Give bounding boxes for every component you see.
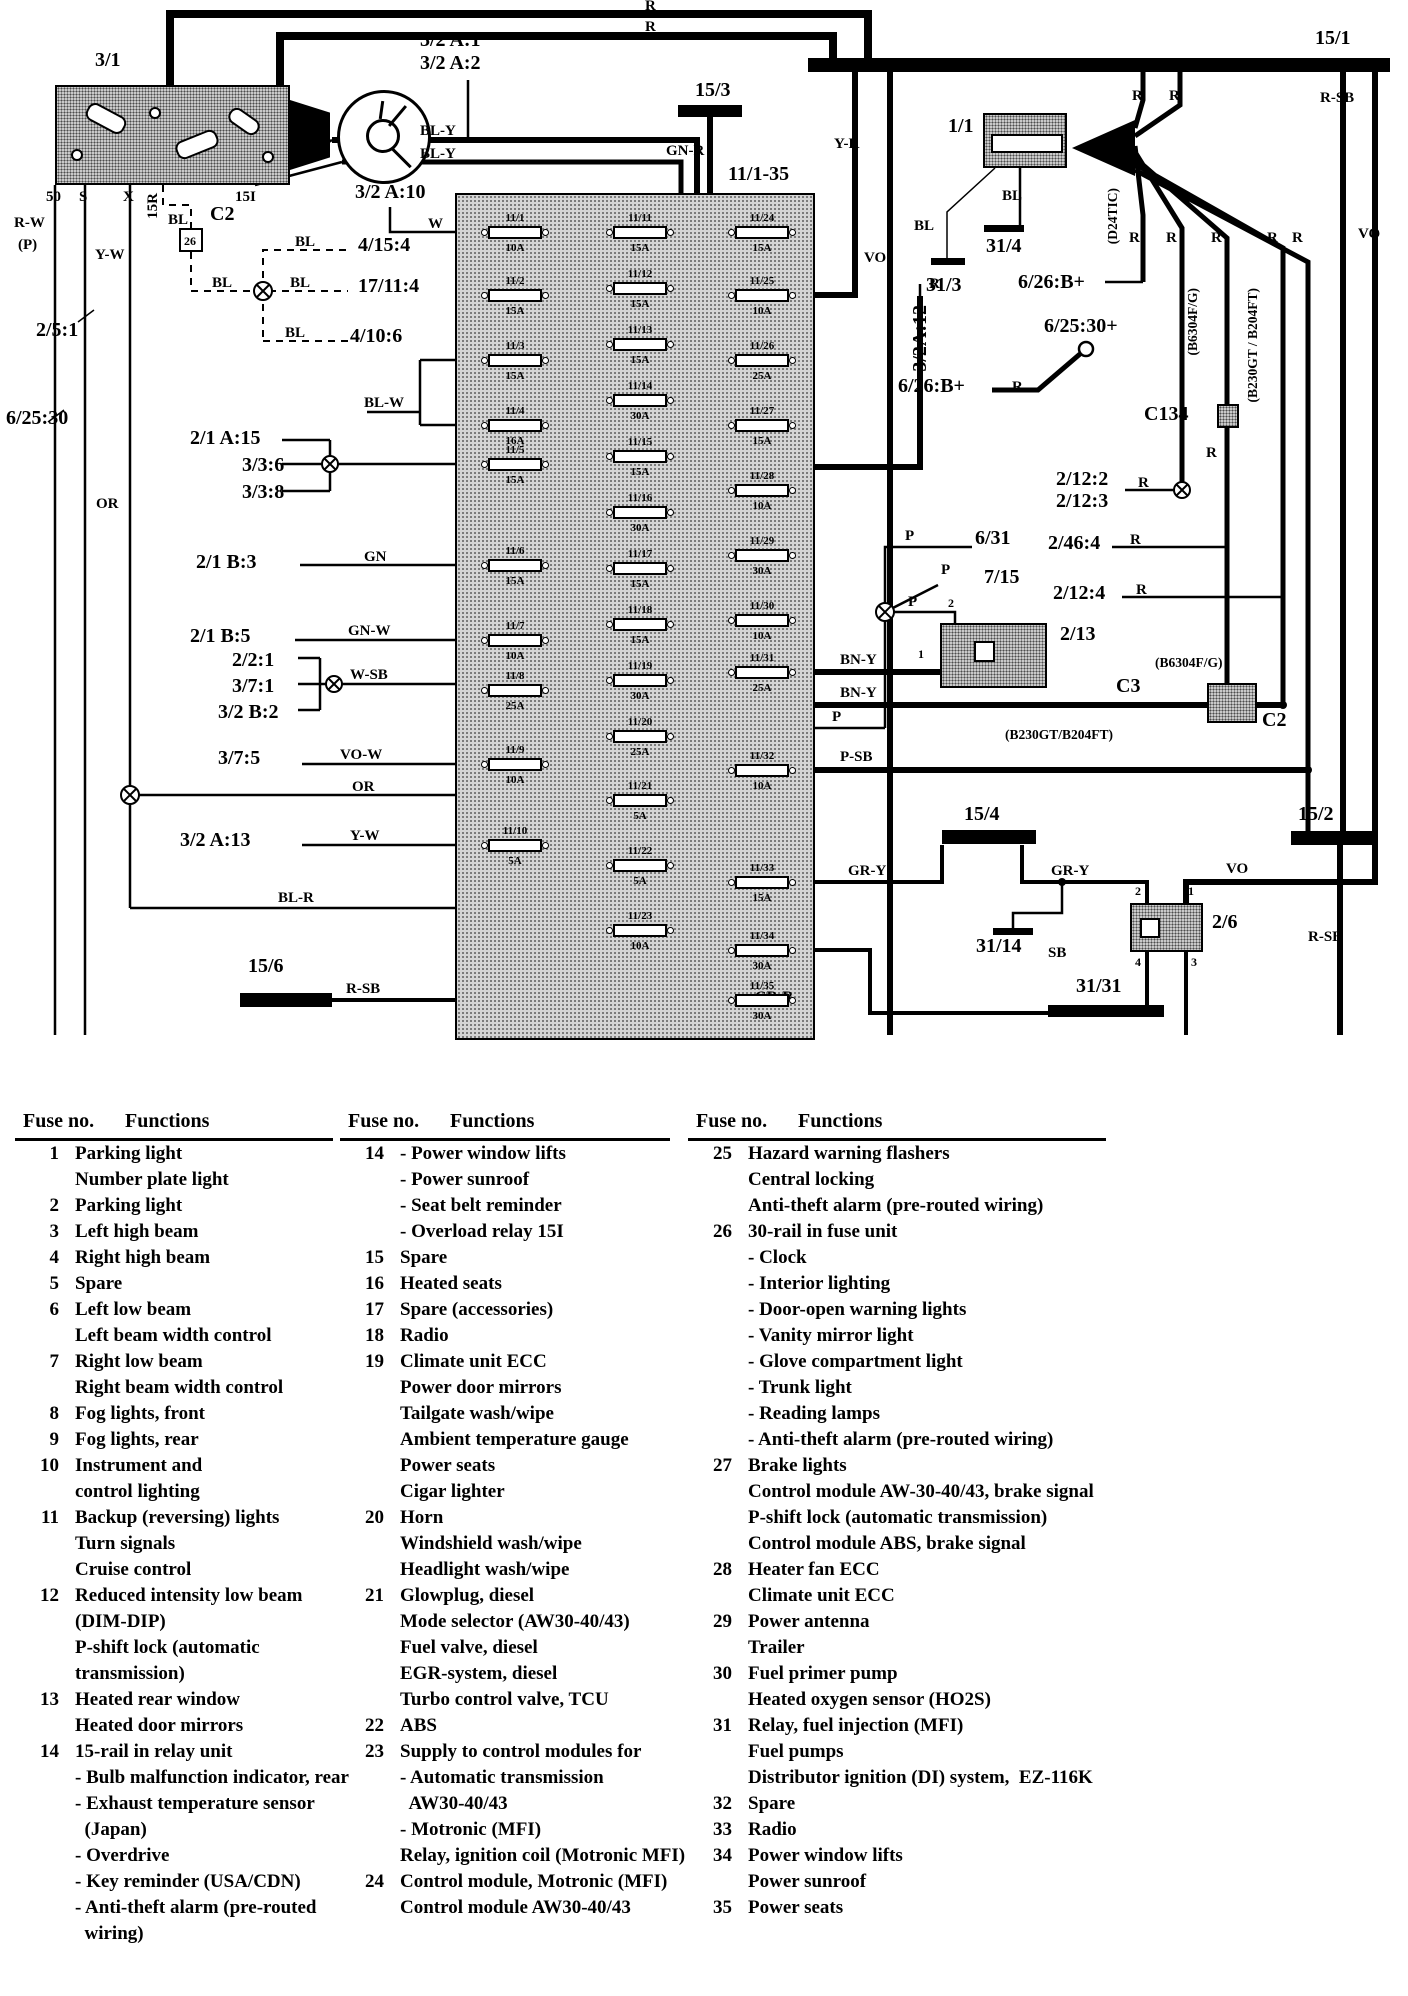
fuse-body <box>735 226 789 239</box>
fuse-id: 11/4 <box>488 405 542 417</box>
fuse-amp-rating: 10A <box>613 940 667 952</box>
fuse-body <box>488 458 542 471</box>
diagram-label: 15I <box>235 190 256 205</box>
diagram-label: VO <box>1226 862 1248 877</box>
diagram-label: 3/7:1 <box>232 676 274 696</box>
schematic-area: 26 3/1RR15/13/2 A:13/2 A:250SX15R15IBL-Y… <box>0 0 1408 1060</box>
diagram-label: 3/2A:12 <box>910 305 930 372</box>
fuse-11-21: 11/215A <box>613 794 667 807</box>
diagram-label: R <box>645 20 656 35</box>
fuse-id: 11/5 <box>488 444 542 456</box>
diagram-label: R-SB <box>346 982 380 997</box>
legend-function-text: Spare <box>400 1245 447 1271</box>
legend-entry-17: 17Spare (accessories) <box>340 1297 670 1323</box>
legend-function-text: ABS <box>400 1713 437 1739</box>
legend-fuse-number: 14 <box>15 1739 59 1947</box>
diagram-label: BL-W <box>364 396 404 411</box>
fuse-body <box>735 944 789 957</box>
legend-entry-6: 6Left low beam Left beam width control <box>15 1297 333 1349</box>
fuse-amp-rating: 10A <box>735 780 789 792</box>
fuse-body <box>613 618 667 631</box>
fuse-amp-rating: 30A <box>735 960 789 972</box>
diagram-label: BL <box>285 326 305 341</box>
fuse-body <box>735 484 789 497</box>
fuse-11-17: 11/1715A <box>613 562 667 575</box>
legend-fuse-number: 35 <box>688 1895 732 1921</box>
fuse-11-33: 11/3315A <box>735 876 789 889</box>
diagram-label: (B6304F/G) <box>1186 288 1200 356</box>
legend-entry-22: 22ABS <box>340 1713 670 1739</box>
diagram-label: 2/2:1 <box>232 650 274 670</box>
diagram-label: 1/1 <box>948 116 974 136</box>
fuse-11-8: 11/825A <box>488 684 542 697</box>
fuse-body <box>735 666 789 679</box>
legend-entry-32: 32Spare <box>688 1791 1106 1817</box>
legend-fuse-number: 17 <box>340 1297 384 1323</box>
legend-fuse-number: 5 <box>15 1271 59 1297</box>
diagram-label: 2 <box>1135 885 1141 897</box>
diagram-label: 4/10:6 <box>350 326 402 346</box>
fuse-amp-rating: 15A <box>488 575 542 587</box>
fuse-id: 11/32 <box>735 750 789 762</box>
diagram-label: 2/1 B:3 <box>196 552 257 572</box>
fuse-11-19: 11/1930A <box>613 674 667 687</box>
switch-connector <box>290 100 330 170</box>
diagram-label: GN-R <box>666 144 704 159</box>
diagram-label: 6/25:30 <box>6 408 68 428</box>
diagram-label: GN <box>364 550 387 565</box>
diagram-label: GN-W <box>348 624 391 639</box>
fuse-amp-rating: 15A <box>613 298 667 310</box>
fuse-id: 11/31 <box>735 652 789 664</box>
fuse-id: 11/33 <box>735 862 789 874</box>
legend-fuse-number: 21 <box>340 1583 384 1713</box>
fuse-11-15: 11/1515A <box>613 450 667 463</box>
legend-fuse-number: 11 <box>15 1505 59 1583</box>
diagram-label: (P) <box>18 238 37 253</box>
diagram-label: R <box>1169 89 1180 104</box>
legend-fuse-number: 16 <box>340 1271 384 1297</box>
diagram-label: BN-Y <box>840 686 877 701</box>
fuse-id: 11/16 <box>613 492 667 504</box>
fuse-amp-rating: 5A <box>613 875 667 887</box>
legend-fuse-number: 19 <box>340 1349 384 1505</box>
legend-entry-7: 7Right low beam Right beam width control <box>15 1349 333 1401</box>
fuse-id: 11/20 <box>613 716 667 728</box>
fuse-body <box>488 634 542 647</box>
fuse-body <box>488 839 542 852</box>
fuse-id: 11/7 <box>488 620 542 632</box>
component-1-1 <box>983 113 1067 168</box>
diagram-label: R-SB <box>1308 930 1342 945</box>
legend-function-text: Fog lights, front <box>75 1401 205 1427</box>
fuse-body <box>613 226 667 239</box>
diagram-label: P-SB <box>840 750 873 765</box>
legend-fuse-number: 26 <box>688 1219 732 1453</box>
fuse-id: 11/19 <box>613 660 667 672</box>
diagram-label: 3/2 A:10 <box>355 182 426 202</box>
diagram-label: GR-Y <box>848 864 886 879</box>
connector-c3-c2 <box>1207 683 1257 723</box>
diagram-label: S <box>79 190 87 205</box>
fuse-body <box>488 684 542 697</box>
fuse-body <box>488 354 542 367</box>
fuse-11-29: 11/2930A <box>735 549 789 562</box>
fuse-body <box>613 562 667 575</box>
legend-function-text: Heated rear window Heated door mirrors <box>75 1687 243 1739</box>
legend-function-text: Backup (reversing) lights Turn signals C… <box>75 1505 279 1583</box>
fuse-id: 11/35 <box>735 980 789 992</box>
diagram-label: 15/4 <box>964 804 1000 824</box>
fuse-body <box>613 794 667 807</box>
fuse-11-14: 11/1430A <box>613 394 667 407</box>
legend-function-text: Radio <box>400 1323 449 1349</box>
diagram-label: R <box>1130 533 1141 548</box>
legend-header: Fuse no.Functions <box>340 1108 670 1141</box>
legend-entry-29: 29Power antenna Trailer <box>688 1609 1106 1661</box>
fuse-11-22: 11/225A <box>613 859 667 872</box>
legend-function-text: Hazard warning flashers Central locking … <box>748 1141 1043 1219</box>
diagram-label: R-W <box>14 216 45 231</box>
diagram-label: 3 <box>1191 956 1197 968</box>
fuse-amp-rating: 15A <box>613 466 667 478</box>
diagram-label: 1 <box>918 648 924 660</box>
legend-function-text: Horn Windshield wash/wipe Headlight wash… <box>400 1505 582 1583</box>
fuse-id: 11/29 <box>735 535 789 547</box>
fuse-amp-rating: 10A <box>488 774 542 786</box>
legend-function-text: Climate unit ECC Power door mirrors Tail… <box>400 1349 629 1505</box>
fuse-11-4: 11/416A <box>488 419 542 432</box>
legend-function-text: Spare <box>748 1791 795 1817</box>
legend-fuse-number: 22 <box>340 1713 384 1739</box>
diagram-label: P <box>832 710 841 725</box>
diagram-label: 2/13 <box>1060 624 1096 644</box>
fuse-id: 11/22 <box>613 845 667 857</box>
legend-entry-19: 19Climate unit ECC Power door mirrors Ta… <box>340 1349 670 1505</box>
legend-function-text: Relay, fuel injection (MFI) Fuel pumps D… <box>748 1713 1093 1791</box>
legend-entry-24: 24Control module, Motronic (MFI) Control… <box>340 1869 670 1921</box>
legend-fuse-number: 12 <box>15 1583 59 1687</box>
legend-column-1: Fuse no.Functions1Parking light Number p… <box>15 1108 333 1947</box>
fuse-amp-rating: 15A <box>735 435 789 447</box>
legend-fuse-number: 4 <box>15 1245 59 1271</box>
fuse-id: 11/14 <box>613 380 667 392</box>
c2-plug-number: 26 <box>184 234 196 249</box>
legend-fuse-number: 20 <box>340 1505 384 1583</box>
legend-header-functions: Functions <box>450 1110 534 1133</box>
fuse-body <box>735 289 789 302</box>
wiring-diagram-page: 26 3/1RR15/13/2 A:13/2 A:250SX15R15IBL-Y… <box>0 0 1408 1996</box>
diagram-label: P <box>905 529 914 544</box>
diagram-label: 4 <box>1135 956 1141 968</box>
legend-fuse-number: 29 <box>688 1609 732 1661</box>
diagram-label: BL-Y <box>420 124 456 139</box>
legend-column-3: Fuse no.Functions25Hazard warning flashe… <box>688 1108 1106 1921</box>
legend-function-text: Radio <box>748 1817 797 1843</box>
diagram-label: 3/2 A:2 <box>420 53 481 73</box>
relay-2-6 <box>1130 903 1203 952</box>
fuse-id: 11/2 <box>488 275 542 287</box>
legend-entry-4: 4Right high beam <box>15 1245 333 1271</box>
legend-header-fuse-no: Fuse no. <box>696 1110 767 1133</box>
fuse-amp-rating: 25A <box>735 370 789 382</box>
fuse-amp-rating: 15A <box>735 242 789 254</box>
diagram-label: R <box>1136 583 1147 598</box>
legend-fuse-number: 3 <box>15 1219 59 1245</box>
legend-entry-34: 34Power window lifts Power sunroof <box>688 1843 1106 1895</box>
legend-entry-2: 2Parking light <box>15 1193 333 1219</box>
fuse-11-16: 11/1630A <box>613 506 667 519</box>
fuse-amp-rating: 25A <box>488 700 542 712</box>
fuse-body <box>488 758 542 771</box>
diagram-label: 3/2 A:13 <box>180 830 251 850</box>
legend-entry-11: 11Backup (reversing) lights Turn signals… <box>15 1505 333 1583</box>
diagram-label: 2/46:4 <box>1048 533 1100 553</box>
diagram-label: 31/4 <box>986 236 1022 256</box>
diagram-label: C2 <box>1262 710 1286 730</box>
legend-fuse-number: 2 <box>15 1193 59 1219</box>
fuse-body <box>613 674 667 687</box>
fuse-body <box>613 506 667 519</box>
fuse-11-7: 11/710A <box>488 634 542 647</box>
fuse-11-1: 11/110A <box>488 226 542 239</box>
fuse-11-3: 11/315A <box>488 354 542 367</box>
diagram-label: 2/12:2 <box>1056 469 1108 489</box>
legend-fuse-number: 34 <box>688 1843 732 1895</box>
legend-entry-14: 1415-rail in relay unit - Bulb malfuncti… <box>15 1739 333 1947</box>
legend-entry-14: 14- Power window lifts - Power sunroof -… <box>340 1141 670 1245</box>
diagram-label: 3/3:8 <box>242 482 284 502</box>
diagram-label: 15R <box>146 193 161 219</box>
legend-entry-3: 3Left high beam <box>15 1219 333 1245</box>
diagram-label: W-SB <box>350 668 388 683</box>
diagram-label: 2/1 B:5 <box>190 626 251 646</box>
fuse-amp-rating: 30A <box>735 1010 789 1022</box>
diagram-label: 2/6 <box>1212 912 1238 932</box>
fuse-body <box>613 282 667 295</box>
diagram-label: P <box>941 563 950 578</box>
legend-header: Fuse no.Functions <box>15 1108 333 1141</box>
fuse-11-12: 11/1215A <box>613 282 667 295</box>
legend-function-text: - Power window lifts - Power sunroof - S… <box>400 1141 566 1245</box>
legend-fuse-number: 13 <box>15 1687 59 1739</box>
diagram-label: P <box>908 595 917 610</box>
fuse-id: 11/27 <box>735 405 789 417</box>
fuse-11-2: 11/215A <box>488 289 542 302</box>
fuse-body <box>488 559 542 572</box>
diagram-label: 4/15:4 <box>358 235 410 255</box>
legend-header-functions: Functions <box>125 1110 209 1133</box>
legend-entry-9: 9Fog lights, rear <box>15 1427 333 1453</box>
diagram-label: 6/26:B+ <box>898 376 965 396</box>
diagram-label: 2 <box>948 597 954 609</box>
legend-function-text: 30-rail in fuse unit - Clock - Interior … <box>748 1219 1053 1453</box>
fuse-11-28: 11/2810A <box>735 484 789 497</box>
legend-fuse-number: 6 <box>15 1297 59 1349</box>
fuse-amp-rating: 15A <box>488 370 542 382</box>
fuse-body <box>735 614 789 627</box>
diagram-label: BL <box>914 219 934 234</box>
diagram-label: R <box>1292 231 1303 246</box>
legend-entry-31: 31Relay, fuel injection (MFI) Fuel pumps… <box>688 1713 1106 1791</box>
legend-function-text: Left low beam Left beam width control <box>75 1297 272 1349</box>
fuse-amp-rating: 30A <box>613 410 667 422</box>
fuse-amp-rating: 5A <box>613 810 667 822</box>
fuse-amp-rating: 15A <box>613 242 667 254</box>
diagram-label: 3/7:5 <box>218 748 260 768</box>
legend-header: Fuse no.Functions <box>688 1108 1106 1141</box>
fuse-11-35: 11/3530A <box>735 994 789 1007</box>
fuse-11-34: 11/3430A <box>735 944 789 957</box>
legend-fuse-number: 32 <box>688 1791 732 1817</box>
diagram-label: 2/12:3 <box>1056 491 1108 511</box>
diagram-label: VO <box>864 251 886 266</box>
fuse-id: 11/8 <box>488 670 542 682</box>
diagram-label: OR <box>352 780 375 795</box>
diagram-label: (B230GT / B204FT) <box>1246 288 1260 403</box>
fuse-11-5: 11/515A <box>488 458 542 471</box>
legend-entry-16: 16Heated seats <box>340 1271 670 1297</box>
legend-fuse-number: 8 <box>15 1401 59 1427</box>
fuse-amp-rating: 25A <box>735 682 789 694</box>
fuse-body <box>613 338 667 351</box>
fuse-11-6: 11/615A <box>488 559 542 572</box>
fuse-id: 11/9 <box>488 744 542 756</box>
legend-fuse-number: 31 <box>688 1713 732 1791</box>
legend-entry-10: 10Instrument and control lighting <box>15 1453 333 1505</box>
diagram-label: SB <box>1048 946 1066 961</box>
diagram-label: 2/1 A:15 <box>190 428 261 448</box>
fuse-id: 11/17 <box>613 548 667 560</box>
diagram-label: BN-Y <box>840 653 877 668</box>
diagram-label: 7/15 <box>984 567 1020 587</box>
fuse-11-23: 11/2310A <box>613 924 667 937</box>
legend-entry-33: 33Radio <box>688 1817 1106 1843</box>
fuse-11-31: 11/3125A <box>735 666 789 679</box>
fuse-11-27: 11/2715A <box>735 419 789 432</box>
diagram-label: (B230GT/B204FT) <box>1005 728 1113 742</box>
diagram-label: R <box>1211 231 1222 246</box>
fuse-body <box>613 730 667 743</box>
legend-function-text: Right high beam <box>75 1245 210 1271</box>
fuse-body <box>488 226 542 239</box>
fuse-id: 11/21 <box>613 780 667 792</box>
legend-function-text: Reduced intensity low beam (DIM-DIP) P-s… <box>75 1583 302 1687</box>
diagram-label: VO-W <box>340 748 382 763</box>
fuse-body <box>613 924 667 937</box>
fuse-body <box>613 394 667 407</box>
fuse-11-13: 11/1315A <box>613 338 667 351</box>
legend-function-text: Spare <box>75 1271 122 1297</box>
legend-function-text: Power window lifts Power sunroof <box>748 1843 903 1895</box>
legend-entry-1: 1Parking light Number plate light <box>15 1141 333 1193</box>
diagram-label: R-SB <box>1320 91 1354 106</box>
legend-entry-27: 27Brake lights Control module AW-30-40/4… <box>688 1453 1106 1557</box>
connector-c134 <box>1217 404 1239 428</box>
legend-entry-23: 23Supply to control modules for - Automa… <box>340 1739 670 1869</box>
fuse-body <box>613 450 667 463</box>
fuse-id: 11/34 <box>735 930 789 942</box>
fuse-id: 11/24 <box>735 212 789 224</box>
fuse-amp-rating: 10A <box>488 242 542 254</box>
legend-function-text: Fog lights, rear <box>75 1427 199 1453</box>
diagram-label: R <box>645 0 656 14</box>
diagram-label: C3 <box>1116 676 1140 696</box>
legend-fuse-number: 28 <box>688 1557 732 1609</box>
diagram-label: 3/3:6 <box>242 455 284 475</box>
fuse-11-11: 11/1115A <box>613 226 667 239</box>
fuse-id: 11/3 <box>488 340 542 352</box>
legend-function-text: Parking light Number plate light <box>75 1141 229 1193</box>
legend-function-text: Supply to control modules for - Automati… <box>400 1739 685 1869</box>
legend-function-text: Instrument and control lighting <box>75 1453 202 1505</box>
diagram-label: C2 <box>210 204 234 224</box>
legend-function-text: Heater fan ECC Climate unit ECC <box>748 1557 895 1609</box>
diagram-label: R <box>1132 89 1143 104</box>
fuse-11-32: 11/3210A <box>735 764 789 777</box>
legend-entry-8: 8Fog lights, front <box>15 1401 333 1427</box>
legend-function-text: Right low beam Right beam width control <box>75 1349 283 1401</box>
diagram-label: 2/5:1 <box>36 320 78 340</box>
diagram-label: 3/1 <box>95 50 121 70</box>
diagram-label: VO <box>1358 227 1380 242</box>
fuse-amp-rating: 15A <box>613 634 667 646</box>
legend-entry-5: 5Spare <box>15 1271 333 1297</box>
diagram-label: R <box>1129 231 1140 246</box>
diagram-label: Y-W <box>95 248 124 263</box>
fuse-id: 11/26 <box>735 340 789 352</box>
fuse-11-18: 11/1815A <box>613 618 667 631</box>
legend-function-text: Left high beam <box>75 1219 199 1245</box>
diagram-label: 3/2 B:2 <box>218 702 279 722</box>
diagram-label: 31/31 <box>1076 976 1122 996</box>
fuse-id: 11/18 <box>613 604 667 616</box>
diagram-label: 50 <box>46 190 61 205</box>
diagram-label: BL-Y <box>420 147 456 162</box>
legend-fuse-number: 10 <box>15 1453 59 1505</box>
fuse-11-10: 11/105A <box>488 839 542 852</box>
legend-function-text: Spare (accessories) <box>400 1297 553 1323</box>
fuse-body <box>735 764 789 777</box>
diagram-label: Y-R <box>834 137 859 152</box>
legend-function-text: Control module, Motronic (MFI) Control m… <box>400 1869 667 1921</box>
fuse-11-20: 11/2025A <box>613 730 667 743</box>
diagram-label: 2/12:4 <box>1053 583 1105 603</box>
fuse-amp-rating: 30A <box>613 522 667 534</box>
legend-fuse-number: 25 <box>688 1141 732 1219</box>
legend-entry-30: 30Fuel primer pump Heated oxygen sensor … <box>688 1661 1106 1713</box>
diagram-label: OR <box>96 497 119 512</box>
diagram-label: BL <box>295 235 315 250</box>
legend-column-2: Fuse no.Functions14- Power window lifts … <box>340 1108 670 1921</box>
legend-entry-25: 25Hazard warning flashers Central lockin… <box>688 1141 1106 1219</box>
fuse-amp-rating: 5A <box>488 855 542 867</box>
fuse-body <box>488 289 542 302</box>
fuse-11-26: 11/2625A <box>735 354 789 367</box>
legend-function-text: Power antenna Trailer <box>748 1609 870 1661</box>
diagram-label: BL <box>212 276 232 291</box>
legend-function-text: 15-rail in relay unit - Bulb malfunction… <box>75 1739 349 1947</box>
diagram-label: 15/3 <box>695 80 731 100</box>
fuse-amp-rating: 10A <box>735 500 789 512</box>
fuse-amp-rating: 15A <box>735 892 789 904</box>
legend-entry-35: 35Power seats <box>688 1895 1106 1921</box>
legend-entry-26: 2630-rail in fuse unit - Clock - Interio… <box>688 1219 1106 1453</box>
fuse-amp-rating: 10A <box>735 305 789 317</box>
legend-function-text: Brake lights Control module AW-30-40/43,… <box>748 1453 1094 1557</box>
fuse-amp-rating: 10A <box>488 650 542 662</box>
fuse-amp-rating: 15A <box>613 578 667 590</box>
